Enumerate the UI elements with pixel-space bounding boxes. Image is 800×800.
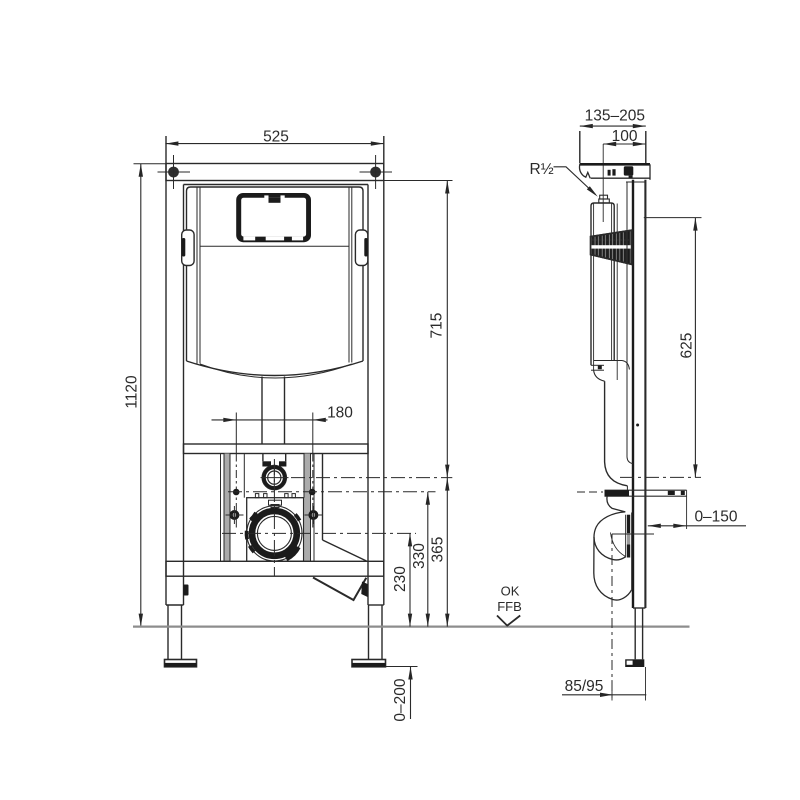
svg-text:135–205: 135–205	[585, 107, 645, 124]
svg-text:1120: 1120	[124, 375, 141, 409]
svg-text:525: 525	[263, 129, 289, 146]
svg-text:625: 625	[679, 333, 696, 359]
svg-text:365: 365	[430, 537, 447, 563]
svg-text:R½: R½	[530, 161, 554, 178]
svg-text:FFB: FFB	[497, 599, 522, 614]
svg-text:0–200: 0–200	[392, 678, 409, 721]
svg-text:230: 230	[392, 566, 409, 592]
svg-text:330: 330	[411, 543, 428, 569]
svg-text:85/95: 85/95	[565, 678, 604, 695]
svg-text:0–150: 0–150	[694, 509, 737, 526]
svg-text:OK: OK	[501, 584, 520, 599]
svg-text:715: 715	[429, 313, 446, 339]
svg-text:180: 180	[327, 405, 353, 422]
svg-text:100: 100	[612, 128, 638, 145]
